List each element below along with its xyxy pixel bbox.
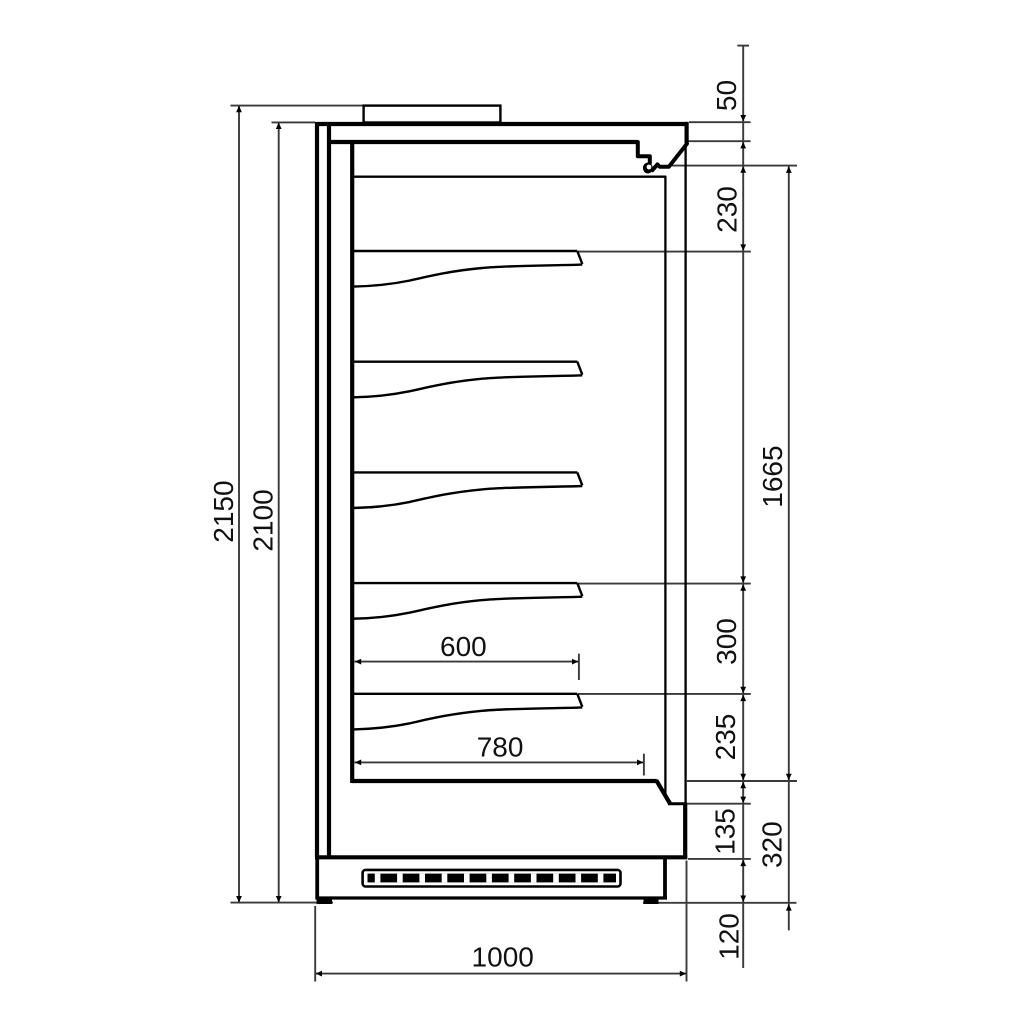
svg-text:135: 135 [709, 808, 740, 855]
svg-text:2100: 2100 [247, 489, 278, 551]
svg-text:780: 780 [477, 732, 524, 763]
svg-text:50: 50 [711, 80, 742, 111]
svg-text:300: 300 [711, 618, 742, 665]
svg-text:230: 230 [712, 186, 743, 233]
svg-text:600: 600 [440, 631, 487, 662]
svg-text:1000: 1000 [472, 942, 534, 973]
svg-text:320: 320 [756, 821, 787, 868]
svg-text:2150: 2150 [208, 480, 239, 542]
svg-text:235: 235 [710, 714, 741, 761]
svg-text:120: 120 [714, 913, 745, 960]
svg-text:1665: 1665 [757, 445, 788, 507]
